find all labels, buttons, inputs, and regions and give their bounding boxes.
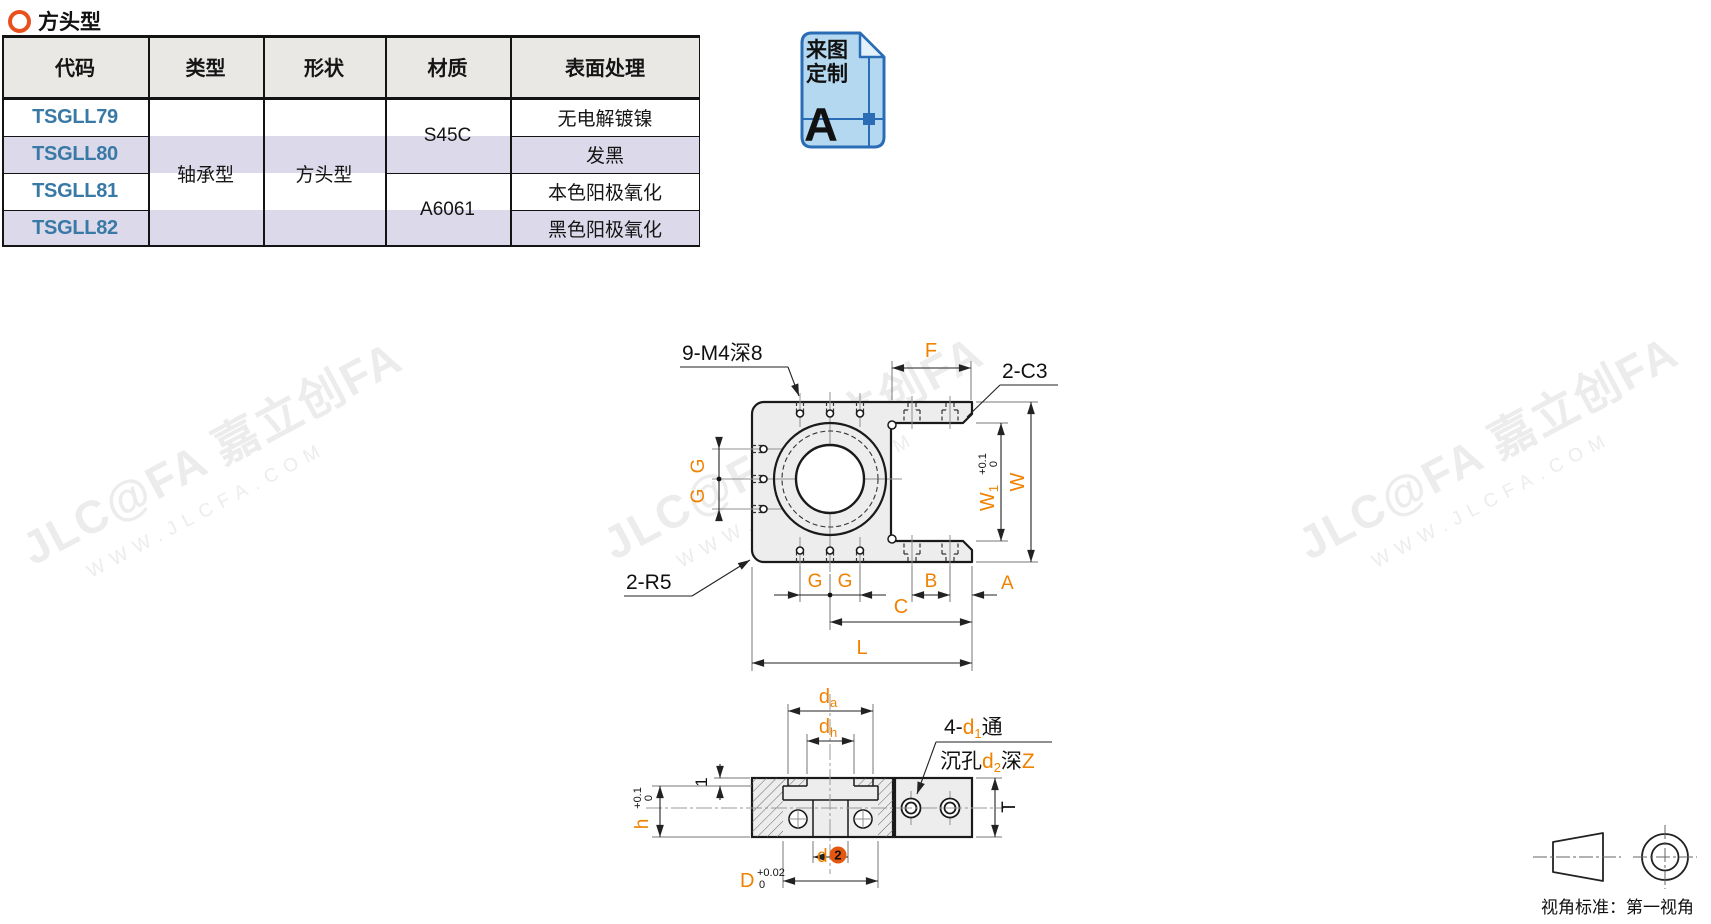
section-marker-icon: [8, 10, 31, 33]
column-header-shape: 形状: [263, 35, 385, 97]
svg-text:A: A: [1001, 573, 1014, 594]
column-header-code: 代码: [2, 35, 148, 97]
svg-text:0: 0: [759, 879, 765, 891]
material-cell: S45C: [385, 99, 510, 173]
plan-view: F 2-C3 W1 +0.1 0 W: [624, 340, 1058, 671]
svg-text:沉孔d2深Z: 沉孔d2深Z: [940, 750, 1035, 775]
code-link[interactable]: TSGLL79: [2, 99, 148, 136]
svg-text:G: G: [808, 571, 823, 592]
badge-fold-icon: [860, 33, 884, 57]
code-link[interactable]: TSGLL80: [2, 136, 148, 173]
dim-l: L: [752, 637, 972, 663]
code-link[interactable]: TSGLL82: [2, 210, 148, 247]
dim-t: T: [995, 778, 1020, 837]
svg-text:da: da: [819, 686, 838, 710]
badge-text: 定制: [806, 62, 848, 86]
svg-text:dh: dh: [819, 716, 837, 740]
svg-text:C: C: [894, 596, 908, 618]
badge-square: [863, 113, 875, 125]
dim-c: C: [830, 596, 972, 622]
svg-text:W: W: [1007, 472, 1029, 491]
dim-D: D +0.02 0: [740, 867, 878, 892]
svg-text:2-C3: 2-C3: [1002, 360, 1048, 383]
svg-text:4-d1通: 4-d1通: [944, 716, 1003, 741]
svg-text:W1: W1: [977, 485, 1001, 511]
svg-text:D: D: [740, 870, 754, 892]
svg-text:G: G: [688, 459, 709, 474]
dim-w: W: [1007, 402, 1031, 562]
section-heading: 方头型: [8, 6, 101, 36]
svg-text:G: G: [688, 489, 709, 504]
svg-text:+0.02: +0.02: [757, 867, 785, 879]
radius-note: 2-R5: [624, 560, 750, 596]
dim-lip: 1: [692, 764, 720, 800]
type-cell: 轴承型: [148, 99, 263, 247]
shape-cell: 方头型: [263, 99, 385, 247]
dim-h: h +0.1 0: [632, 786, 660, 837]
dim-da: da: [788, 686, 873, 711]
dim-f: F: [892, 340, 971, 368]
svg-text:2-R5: 2-R5: [626, 571, 672, 594]
column-header-material: 材质: [385, 35, 510, 97]
catalog-page: { "heading": { "title": "方头型" }, "table"…: [0, 0, 1711, 924]
relief-hole: [888, 535, 896, 543]
chamfer-note: 2-C3: [967, 360, 1058, 417]
first-angle-projection-icon: 视角标准：第一视角: [1533, 825, 1697, 917]
surface-cell: 本色阳极氧化: [510, 173, 700, 210]
section-view: da dh 4-d1通 沉孔d2深Z 1 h +0.1 0: [632, 686, 1052, 892]
column-header-type: 类型: [148, 35, 263, 97]
dim-b: B: [912, 571, 950, 595]
svg-text:0: 0: [643, 795, 655, 801]
projection-standard-label: 视角标准：第一视角: [1541, 898, 1694, 917]
dim-a: A: [972, 573, 1014, 595]
page-title: 方头型: [38, 6, 101, 36]
svg-text:d: d: [817, 846, 828, 867]
product-table: 代码 类型 形状 材质 表面处理 TSGLL79 TSGLL80 TSGLL81…: [2, 35, 700, 247]
svg-text:0: 0: [988, 461, 1000, 467]
code-link[interactable]: TSGLL81: [2, 173, 148, 210]
relief-hole: [888, 421, 896, 429]
surface-cell: 黑色阳极氧化: [510, 210, 700, 247]
svg-text:L: L: [856, 637, 867, 659]
column-header-surface: 表面处理: [510, 35, 700, 97]
badge-letter: A: [804, 98, 838, 151]
surface-cell: 无电解镀镍: [510, 99, 700, 136]
thread-note: 9-M4深8: [680, 342, 799, 396]
surface-cell: 发黑: [510, 136, 700, 173]
svg-text:T: T: [999, 801, 1020, 813]
dim-w1: W1 +0.1 0: [977, 423, 1001, 541]
custom-drawing-badge[interactable]: 来图 定制 A: [802, 33, 884, 151]
svg-text:9-M4深8: 9-M4深8: [682, 342, 763, 365]
bore-inner-circle: [796, 445, 864, 513]
svg-text:1: 1: [692, 777, 711, 786]
svg-text:2: 2: [834, 848, 841, 863]
svg-text:B: B: [925, 571, 938, 592]
material-cell: A6061: [385, 173, 510, 247]
svg-text:F: F: [925, 340, 937, 362]
svg-text:G: G: [838, 571, 853, 592]
badge-text: 来图: [806, 38, 848, 62]
svg-text:h: h: [632, 819, 653, 830]
